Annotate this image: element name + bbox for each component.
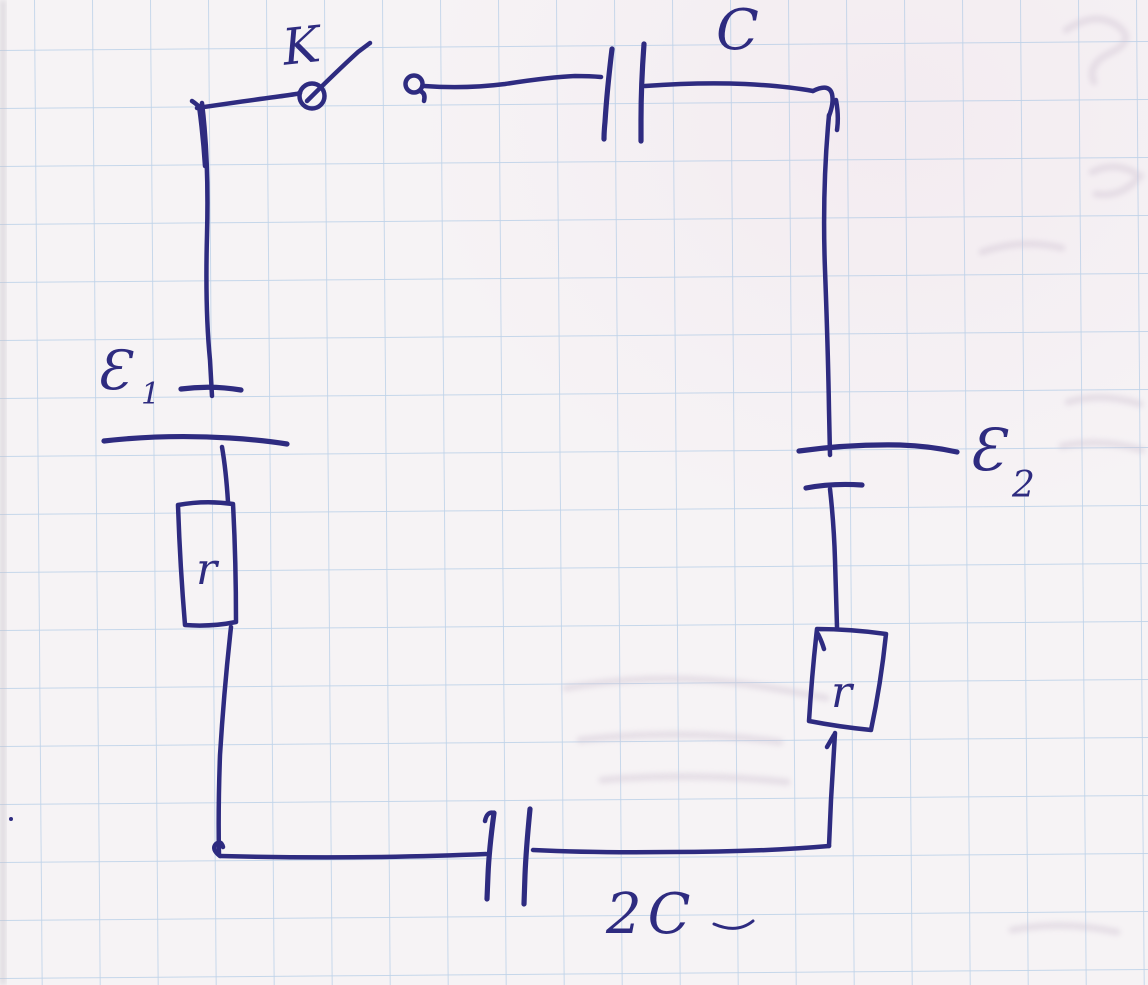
- label-emf2-symbol: Ɛ: [968, 416, 1009, 484]
- capacitor-c-plate-right: [641, 44, 644, 141]
- wire-topright-double-stroke: [836, 100, 838, 130]
- stray-ink-dot: [9, 817, 13, 821]
- emf1-short-plate: [181, 387, 241, 390]
- label-resistor-right: r: [831, 667, 855, 718]
- page-edge-shadow: [0, 0, 6, 985]
- grid-paper: [0, 0, 1148, 985]
- label-emf1-subscript: 1: [141, 377, 160, 412]
- scanned-notebook-page: K C Ɛ 1 Ɛ 2 r r 2C: [0, 0, 1148, 985]
- label-resistor-left: r: [196, 544, 220, 595]
- label-emf1-symbol: Ɛ: [96, 339, 134, 402]
- label-capacitor-c: C: [716, 0, 759, 63]
- label-emf2-subscript: 2: [1011, 465, 1035, 506]
- label-capacitor-2c: 2C: [605, 882, 696, 947]
